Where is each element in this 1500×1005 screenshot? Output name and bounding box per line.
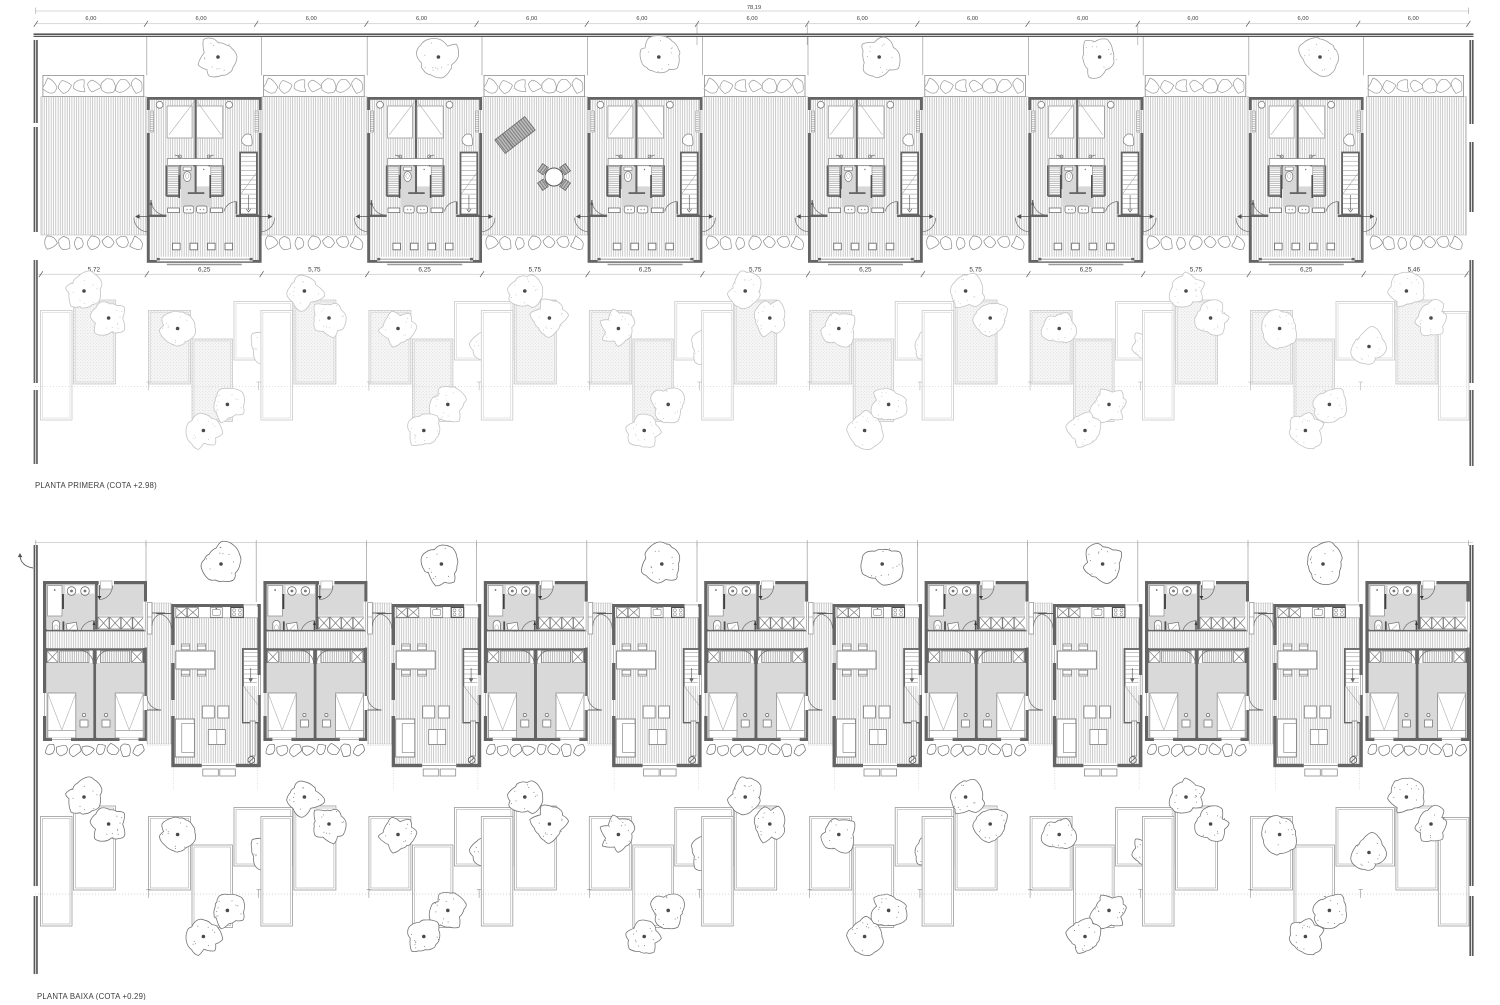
- svg-text:6,00: 6,00: [747, 16, 758, 22]
- svg-text:78,19: 78,19: [747, 5, 761, 11]
- svg-text:PLANTA BAIXA (COTA +0.29): PLANTA BAIXA (COTA +0.29): [37, 992, 146, 1000]
- svg-text:6,25: 6,25: [418, 267, 431, 274]
- svg-text:5,75: 5,75: [529, 267, 542, 274]
- svg-text:6,00: 6,00: [416, 16, 427, 22]
- svg-text:6,00: 6,00: [85, 16, 96, 22]
- svg-text:5,75: 5,75: [969, 267, 982, 274]
- svg-text:6,00: 6,00: [636, 16, 647, 22]
- svg-text:6,25: 6,25: [1300, 267, 1313, 274]
- svg-text:6,00: 6,00: [196, 16, 207, 22]
- svg-text:6,25: 6,25: [859, 267, 872, 274]
- svg-text:PLANTA PRIMERA (COTA +2.98): PLANTA PRIMERA (COTA +2.98): [35, 481, 157, 490]
- svg-text:6,00: 6,00: [1408, 16, 1419, 22]
- svg-text:6,00: 6,00: [526, 16, 537, 22]
- svg-text:6,00: 6,00: [306, 16, 317, 22]
- svg-text:6,00: 6,00: [967, 16, 978, 22]
- svg-text:5,75: 5,75: [308, 267, 321, 274]
- svg-text:6,00: 6,00: [1187, 16, 1198, 22]
- svg-text:6,25: 6,25: [198, 267, 211, 274]
- svg-text:6,00: 6,00: [1298, 16, 1309, 22]
- svg-text:6,25: 6,25: [639, 267, 652, 274]
- svg-text:6,00: 6,00: [1077, 16, 1088, 22]
- svg-text:5,75: 5,75: [1190, 267, 1203, 274]
- svg-text:6,25: 6,25: [1080, 267, 1093, 274]
- svg-text:6,00: 6,00: [857, 16, 868, 22]
